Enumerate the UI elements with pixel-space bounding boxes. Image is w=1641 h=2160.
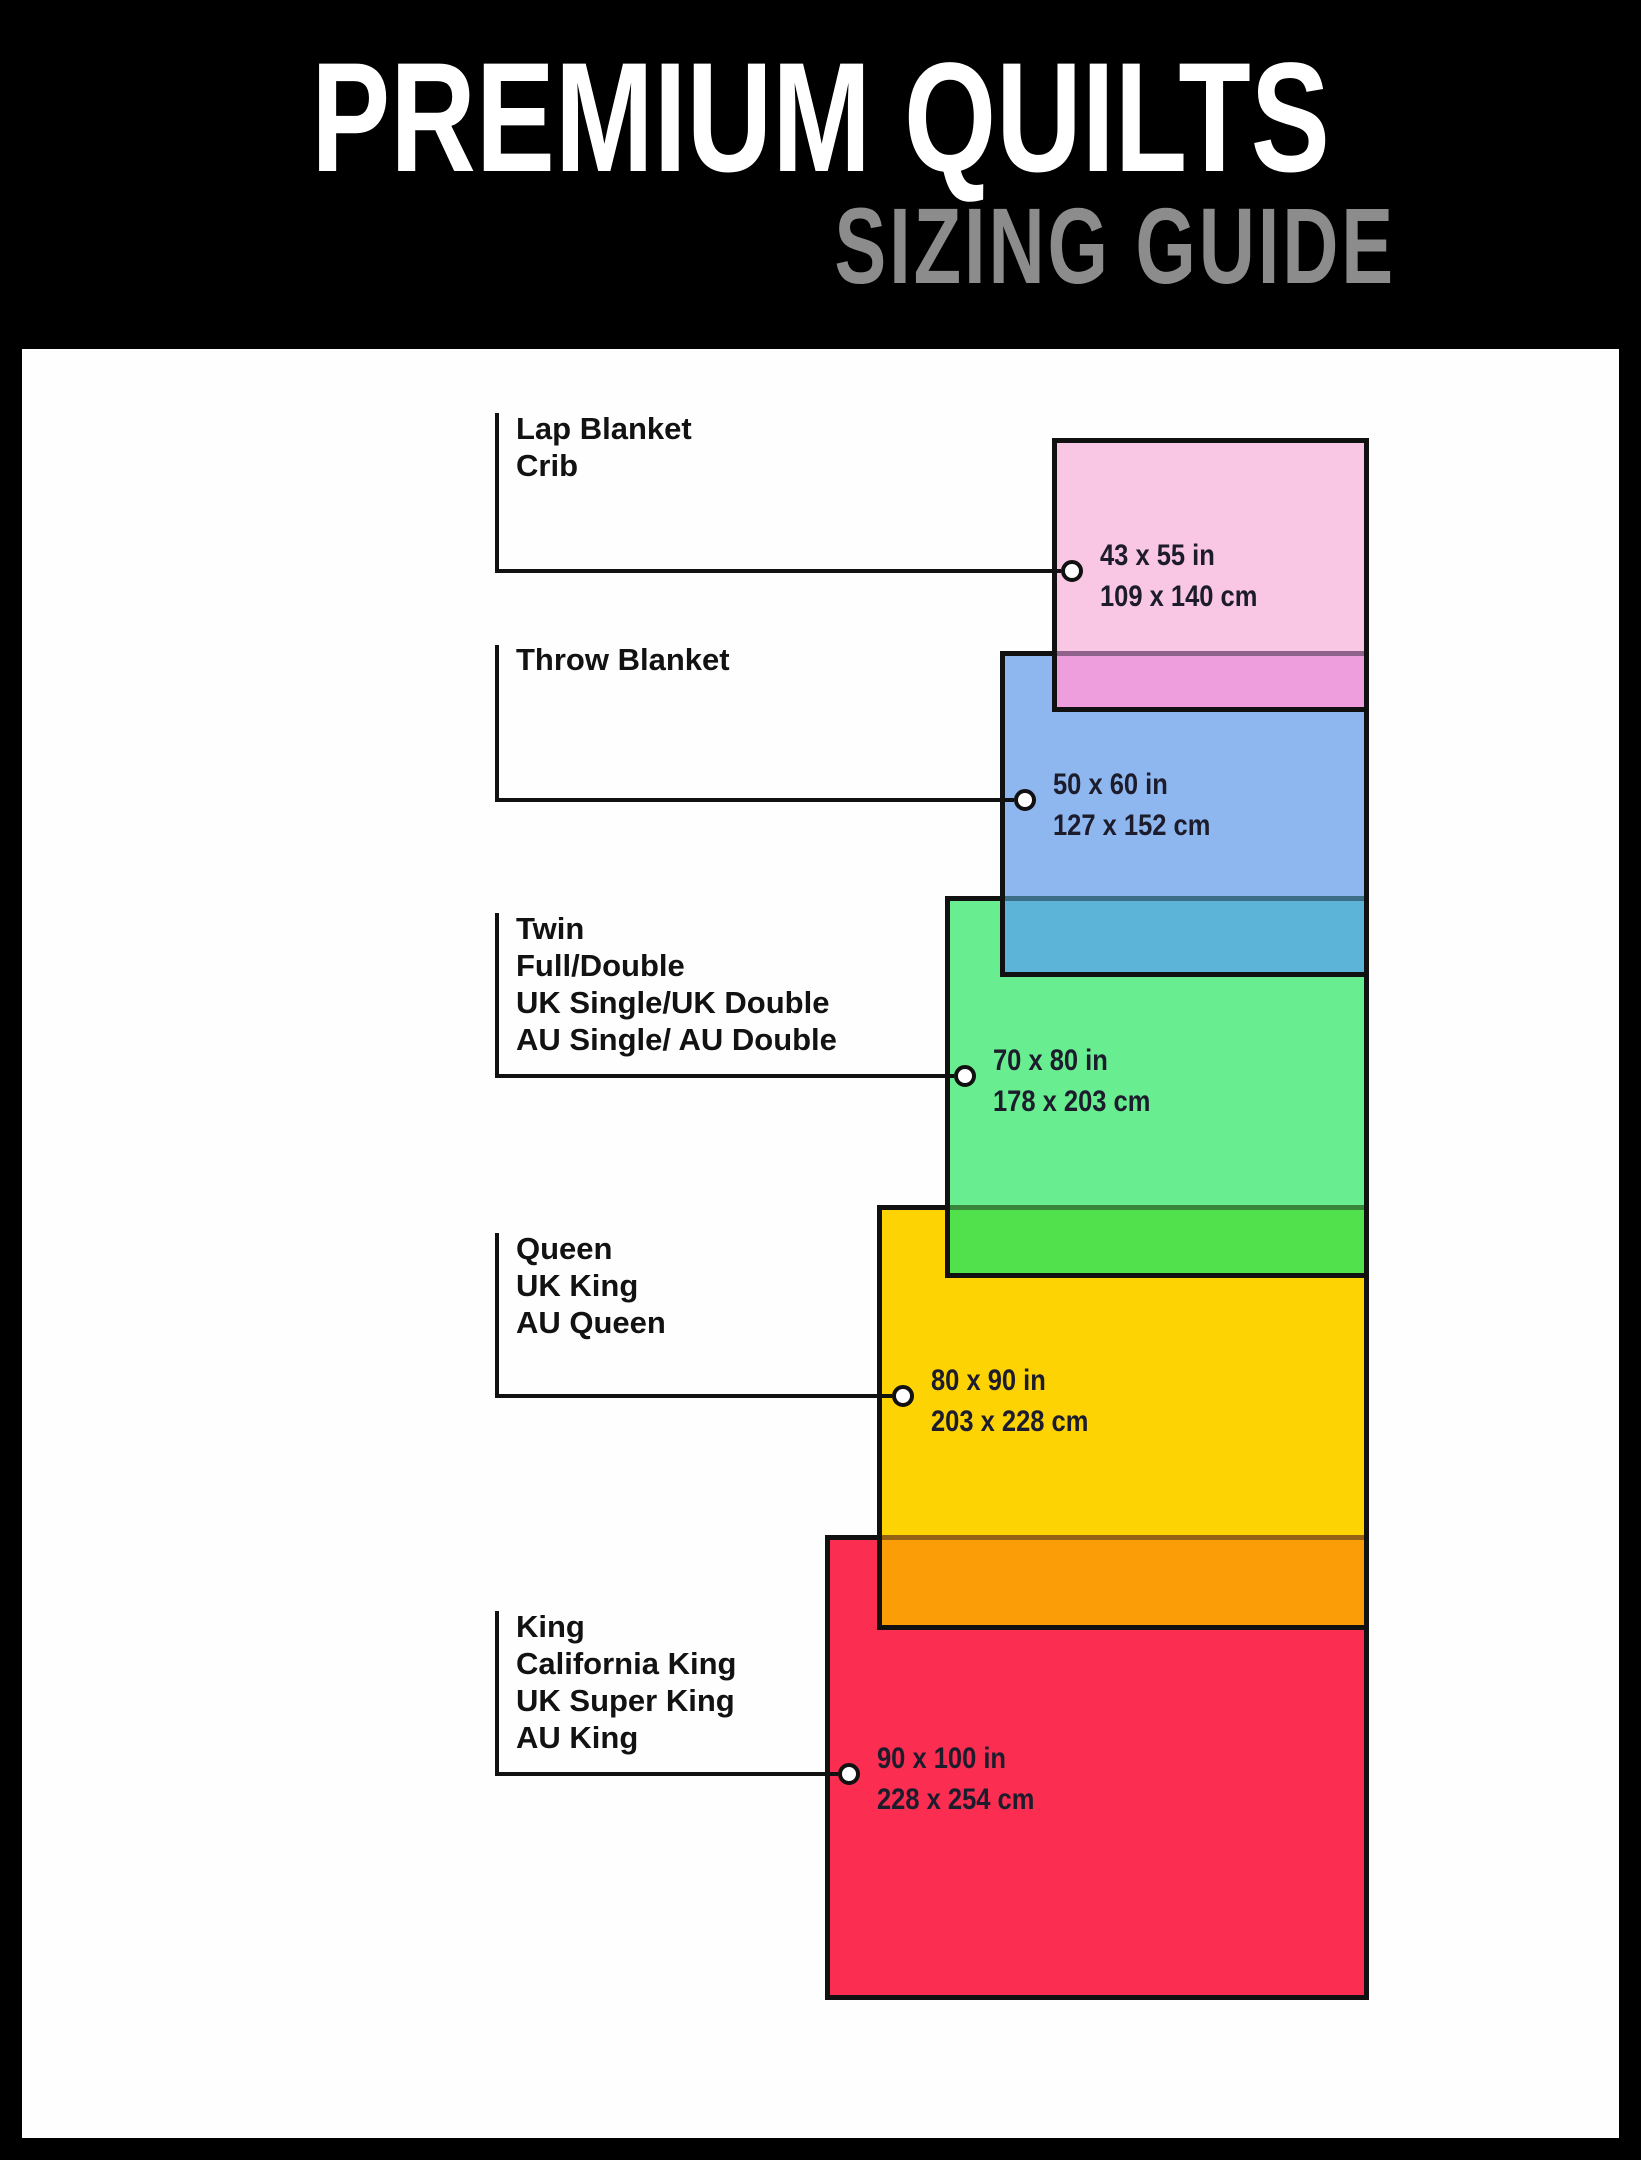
dimension-label-king: 90 x 100 in228 x 254 cm [877, 1738, 1034, 1820]
size-name-line: Lap Blanket [516, 410, 692, 447]
size-name-line: UK King [516, 1267, 666, 1304]
connector-dot-throw [1014, 789, 1036, 811]
size-name-list-throw: Throw Blanket [516, 641, 730, 678]
dimension-cm: 228 x 254 cm [877, 1779, 1034, 1820]
dimension-cm: 109 x 140 cm [1100, 576, 1257, 617]
dimension-cm: 178 x 203 cm [993, 1081, 1150, 1122]
dimension-inches: 50 x 60 in [1053, 764, 1210, 805]
size-name-line: King [516, 1608, 736, 1645]
dimension-inches: 43 x 55 in [1100, 535, 1257, 576]
connector-dot-lap [1061, 560, 1083, 582]
bracket-vertical-line-throw [495, 645, 499, 802]
overlap-band-twin [950, 1205, 1364, 1273]
size-name-line: AU Single/ AU Double [516, 1021, 837, 1058]
bracket-horizontal-line-king [495, 1772, 838, 1776]
dimension-label-lap: 43 x 55 in109 x 140 cm [1100, 535, 1257, 617]
bracket-vertical-line-lap [495, 413, 499, 573]
overlap-band-queen [882, 1535, 1364, 1625]
bracket-horizontal-line-twin [495, 1074, 954, 1078]
size-name-line: Twin [516, 910, 837, 947]
size-name-line: California King [516, 1645, 736, 1682]
size-name-line: AU Queen [516, 1304, 666, 1341]
size-name-line: Queen [516, 1230, 666, 1267]
overlap-band-lap [1057, 651, 1364, 707]
size-name-line: UK Single/UK Double [516, 984, 837, 1021]
size-name-line: Crib [516, 447, 692, 484]
connector-dot-queen [892, 1385, 914, 1407]
connector-dot-twin [954, 1065, 976, 1087]
bracket-horizontal-line-queen [495, 1394, 892, 1398]
size-name-line: Full/Double [516, 947, 837, 984]
size-name-line: Throw Blanket [516, 641, 730, 678]
page-subtitle: SIZING GUIDE [391, 192, 1396, 300]
dimension-label-twin: 70 x 80 in178 x 203 cm [993, 1040, 1150, 1122]
size-name-list-queen: QueenUK KingAU Queen [516, 1230, 666, 1341]
infographic-page: PREMIUM QUILTS SIZING GUIDE 43 x 55 in10… [0, 0, 1641, 2160]
bracket-vertical-line-twin [495, 913, 499, 1078]
dimension-label-queen: 80 x 90 in203 x 228 cm [931, 1360, 1088, 1442]
content-background [22, 349, 1619, 2138]
dimension-cm: 203 x 228 cm [931, 1401, 1088, 1442]
connector-dot-king [838, 1763, 860, 1785]
dimension-inches: 90 x 100 in [877, 1738, 1034, 1779]
dimension-label-throw: 50 x 60 in127 x 152 cm [1053, 764, 1210, 846]
overlap-band-throw [1005, 896, 1364, 972]
bracket-vertical-line-queen [495, 1233, 499, 1398]
size-name-list-king: KingCalifornia KingUK Super KingAU King [516, 1608, 736, 1756]
bracket-horizontal-line-throw [495, 798, 1014, 802]
dimension-inches: 70 x 80 in [993, 1040, 1150, 1081]
dimension-cm: 127 x 152 cm [1053, 805, 1210, 846]
size-name-list-lap: Lap BlanketCrib [516, 410, 692, 484]
dimension-inches: 80 x 90 in [931, 1360, 1088, 1401]
page-title: PREMIUM QUILTS [197, 40, 1444, 196]
size-name-list-twin: TwinFull/DoubleUK Single/UK DoubleAU Sin… [516, 910, 837, 1058]
bracket-horizontal-line-lap [495, 569, 1061, 573]
bracket-vertical-line-king [495, 1611, 499, 1776]
size-name-line: AU King [516, 1719, 736, 1756]
size-name-line: UK Super King [516, 1682, 736, 1719]
